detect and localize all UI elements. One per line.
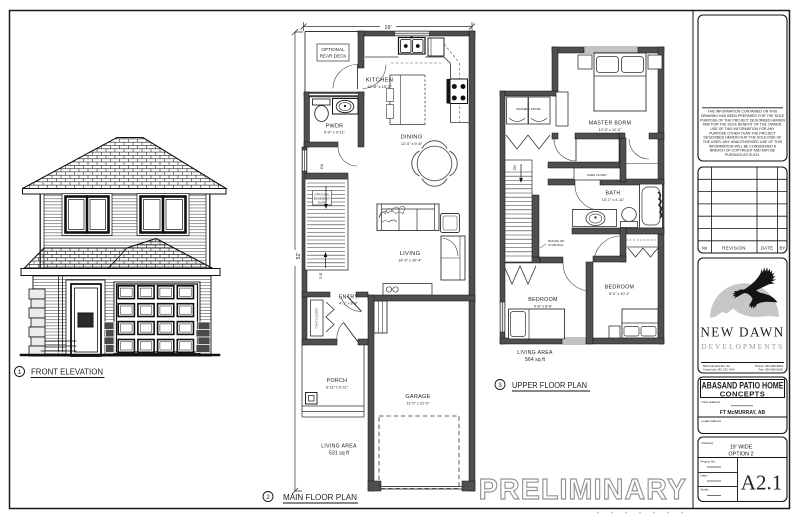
svg-text:OPTION 2: OPTION 2 — [728, 451, 753, 457]
svg-text:8'-0" x 10'-1": 8'-0" x 10'-1" — [609, 292, 630, 296]
svg-text:LIVING: LIVING — [400, 251, 421, 257]
svg-text:5'-8": 5'-8" — [319, 271, 323, 279]
svg-text:A2.1: A2.1 — [741, 471, 782, 495]
svg-text:Fax: 250-506-6025: Fax: 250-506-6025 — [759, 368, 784, 372]
svg-text:DATE: DATE — [761, 246, 773, 251]
svg-text:9'-8" x 8'-8": 9'-8" x 8'-8" — [534, 305, 553, 309]
svg-text:10'-1" x 4'-11": 10'-1" x 4'-11" — [602, 198, 625, 202]
svg-text:12'-0" x 12'-0": 12'-0" x 12'-0" — [599, 128, 622, 132]
svg-text:BEDROOM: BEDROOM — [605, 285, 634, 291]
svg-text:52': 52' — [296, 252, 302, 259]
svg-text:PWDR: PWDR — [326, 124, 344, 130]
svg-text:19': 19' — [384, 25, 391, 31]
svg-text:REAR DECK: REAR DECK — [320, 54, 348, 59]
svg-text:BATH: BATH — [606, 191, 621, 197]
svg-text:5'-0" x 4'-11": 5'-0" x 4'-11" — [324, 131, 346, 135]
svg-text:MAIN FLOOR PLAN: MAIN FLOOR PLAN — [283, 493, 357, 502]
svg-text:CONCEPTS: CONCEPTS — [720, 389, 765, 398]
svg-text:DINING: DINING — [400, 135, 422, 141]
svg-text:STUB WALL: STUB WALL — [548, 243, 564, 247]
svg-text:3: 3 — [498, 382, 502, 389]
svg-text:DN: DN — [320, 163, 324, 169]
svg-text:6'-11" x 5'-11": 6'-11" x 5'-11" — [326, 386, 349, 390]
svg-text:UPPER FLOOR PLAN: UPPER FLOOR PLAN — [512, 381, 587, 390]
svg-text:No: No — [702, 246, 708, 251]
svg-text:12'-8" x 10'-0": 12'-8" x 10'-0" — [367, 84, 392, 89]
svg-text:KITCHEN: KITCHEN — [366, 78, 394, 84]
svg-text:SUITE: SUITE — [318, 201, 327, 205]
svg-text:DEVELOPMENTS: DEVELOPMENTS — [701, 342, 784, 351]
svg-text:LINEN CLOSET: LINEN CLOSET — [587, 173, 607, 177]
svg-text:OPTIONAL: OPTIONAL — [321, 47, 345, 52]
svg-text:1: 1 — [18, 369, 22, 376]
svg-text:564 sq ft: 564 sq ft — [525, 357, 545, 363]
svg-text:PURPOSE OTHER THAN THE PROJECT: PURPOSE OTHER THAN THE PROJECT — [709, 131, 777, 135]
svg-text:2: 2 — [266, 494, 270, 501]
svg-text:PURSUED AS SUCH.: PURSUED AS SUCH. — [725, 153, 760, 157]
svg-text:Cranbrook, BC V1C 4K4: Cranbrook, BC V1C 4K4 — [703, 368, 735, 372]
svg-text:BEDROOM: BEDROOM — [528, 297, 557, 303]
svg-text:NEW DAWN: NEW DAWN — [700, 325, 784, 340]
svg-text:BY: BY — [779, 246, 785, 251]
svg-text:Legal Address: Legal Address — [702, 419, 722, 423]
svg-text:LIVING AREA: LIVING AREA — [321, 444, 357, 450]
svg-text:531 sq ft: 531 sq ft — [329, 451, 349, 457]
svg-text:BREACH OF COPYRIGHT AND MAY BE: BREACH OF COPYRIGHT AND MAY BE — [710, 149, 776, 153]
svg-text:11'-0" x 21'-0": 11'-0" x 21'-0" — [406, 402, 430, 406]
svg-text:PRELIMINARY: PRELIMINARY — [479, 474, 687, 506]
svg-text:COAT CLOSET: COAT CLOSET — [315, 307, 319, 328]
svg-text:12'-0" x 9'-6": 12'-0" x 9'-6" — [401, 142, 423, 146]
svg-text:Civic Address: Civic Address — [702, 400, 721, 404]
svg-text:GARAGE: GARAGE — [405, 394, 430, 400]
svg-text:Project No:: Project No: — [701, 460, 716, 464]
svg-text:MASTER BDRM: MASTER BDRM — [589, 121, 631, 127]
svg-text:AND FOR THE SOLE BENEFIT OF TH: AND FOR THE SOLE BENEFIT OF THE OWNER. — [703, 123, 783, 127]
svg-text:DRAWING HAS BEEN PREPARED FOR: DRAWING HAS BEEN PREPARED FOR THE SOLE — [701, 114, 785, 118]
svg-text:Scale:: Scale: — [701, 488, 710, 492]
svg-text:REVISION: REVISION — [722, 246, 745, 251]
svg-text:Date:: Date: — [701, 474, 709, 478]
svg-text:FT McMURRAY, AB: FT McMURRAY, AB — [720, 410, 766, 416]
svg-text:14'-3" x 10'-4": 14'-3" x 10'-4" — [398, 259, 422, 263]
svg-text:Drawing:: Drawing: — [702, 441, 714, 445]
svg-text:WASHER | DRYER: WASHER | DRYER — [516, 107, 540, 111]
svg-text:THE USER. ANY UNAUTHORIZED US: THE USER. ANY UNAUTHORIZED USE OF THIS — [703, 140, 783, 144]
svg-text:LIVING AREA: LIVING AREA — [517, 350, 553, 356]
svg-text:DN: DN — [513, 165, 517, 170]
svg-text:FRONT ELEVATION: FRONT ELEVATION — [31, 368, 103, 377]
svg-text:PORCH: PORCH — [327, 378, 348, 384]
svg-text:19' WIDE: 19' WIDE — [730, 445, 753, 451]
